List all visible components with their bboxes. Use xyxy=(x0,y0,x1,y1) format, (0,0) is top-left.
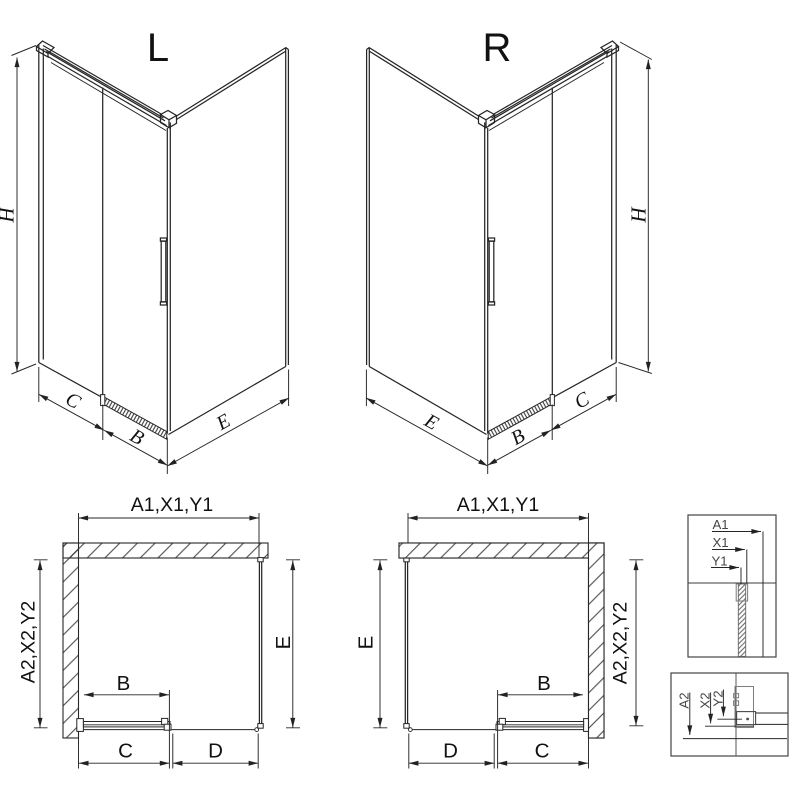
detail-wall-a1: A1 xyxy=(713,517,729,532)
wall-profile-strip xyxy=(738,584,745,656)
plan-left-c-dim: C xyxy=(118,740,133,763)
shower-enclosure-drawing: L R H H C B E C B E A1,X1,Y1 A1,X1,Y1 A2… xyxy=(0,0,800,800)
dim-label-h-left: H xyxy=(0,206,19,224)
iso-right-title: R xyxy=(483,26,512,70)
rail-screw xyxy=(746,718,749,721)
dim-label-h-right: H xyxy=(627,206,651,224)
detail-box-wall-profile xyxy=(688,515,776,657)
sliding-door-plan xyxy=(83,722,170,727)
plan-left-side-dim: A2,X2,Y2 xyxy=(18,601,40,683)
plan-right-d-dim: D xyxy=(443,740,458,763)
detail-box-border xyxy=(671,673,788,756)
plan-right-side-dim: A2,X2,Y2 xyxy=(610,602,632,684)
wall-profile-plan xyxy=(77,719,84,732)
detail-box-floor-profile xyxy=(671,673,788,756)
plan-right-c-dim: C xyxy=(535,740,550,763)
detail-floor-a2: A2 xyxy=(677,692,692,708)
plan-right-e-dim: E xyxy=(355,636,378,650)
detail-wall-x1: X1 xyxy=(713,535,729,550)
panel-cap-top xyxy=(258,558,263,562)
plan-left-d-dim: D xyxy=(208,740,223,763)
plan-left-e-dim: E xyxy=(272,636,295,650)
wall-band-top xyxy=(63,543,268,558)
detail-wall-y1: Y1 xyxy=(712,554,728,569)
iso-left-title: L xyxy=(147,26,169,70)
wall-band-side xyxy=(63,543,79,738)
plan-left-b-dim: B xyxy=(117,672,131,695)
plan-right-top-dim: A1,X1,Y1 xyxy=(457,494,539,516)
technical-drawing-page: L R H H C B E C B E A1,X1,Y1 A1,X1,Y1 A2… xyxy=(0,0,800,800)
panel-cap-bottom xyxy=(258,724,263,729)
plan-right-b-dim: B xyxy=(537,672,551,695)
door-hardware-2 xyxy=(164,724,171,730)
door-hardware-1 xyxy=(162,718,168,724)
detail-floor-y2: Y2 xyxy=(711,690,726,706)
plan-left-top-dim: A1,X1,Y1 xyxy=(131,494,213,516)
